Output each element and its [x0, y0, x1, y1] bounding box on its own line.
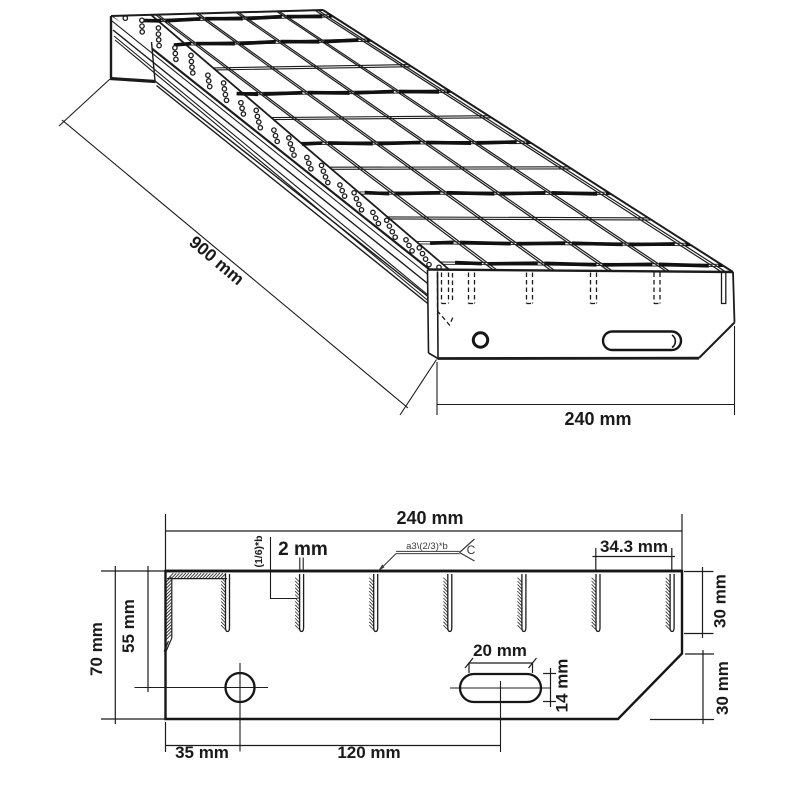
svg-text:70 mm: 70 mm — [87, 622, 106, 676]
svg-text:a3\(2/3)*b: a3\(2/3)*b — [406, 541, 448, 552]
svg-text:120 mm: 120 mm — [337, 743, 400, 762]
svg-text:30 mm: 30 mm — [713, 661, 732, 715]
svg-text:240 mm: 240 mm — [564, 409, 631, 429]
svg-text:C: C — [467, 543, 476, 557]
svg-text:34.3 mm: 34.3 mm — [600, 537, 668, 556]
svg-text:2 mm: 2 mm — [278, 539, 328, 560]
svg-text:240 mm: 240 mm — [396, 508, 463, 528]
svg-text:20 mm: 20 mm — [473, 641, 527, 660]
svg-text:(1/6)*b: (1/6)*b — [253, 535, 265, 567]
svg-text:30 mm: 30 mm — [711, 574, 730, 628]
svg-text:55 mm: 55 mm — [119, 599, 138, 653]
svg-text:14 mm: 14 mm — [553, 659, 572, 713]
svg-text:35 mm: 35 mm — [175, 743, 229, 762]
